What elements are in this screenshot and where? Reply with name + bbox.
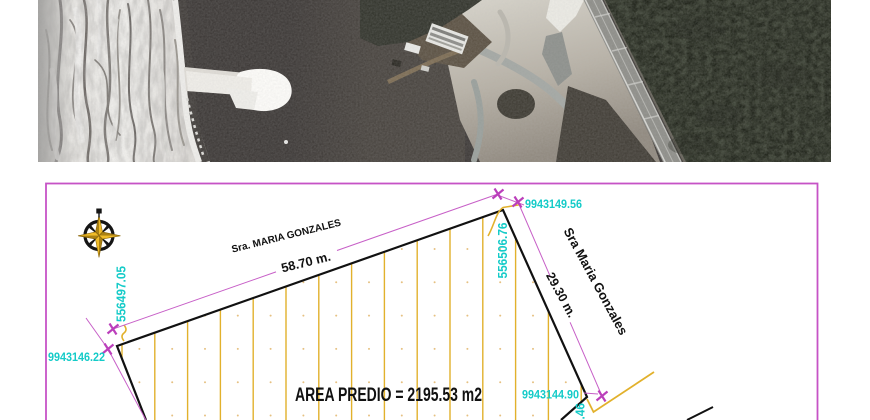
- svg-text:556516.46: 556516.46: [573, 403, 588, 420]
- svg-text:9943144.90: 9943144.90: [522, 388, 579, 402]
- svg-text:AREA PREDIO = 2195.53 m2: AREA PREDIO = 2195.53 m2: [295, 385, 482, 406]
- svg-text:9943146.22: 9943146.22: [48, 350, 105, 364]
- svg-text:556506.76: 556506.76: [495, 223, 510, 279]
- svg-text:9943149.56: 9943149.56: [525, 197, 582, 211]
- svg-text:556497.05: 556497.05: [114, 266, 129, 322]
